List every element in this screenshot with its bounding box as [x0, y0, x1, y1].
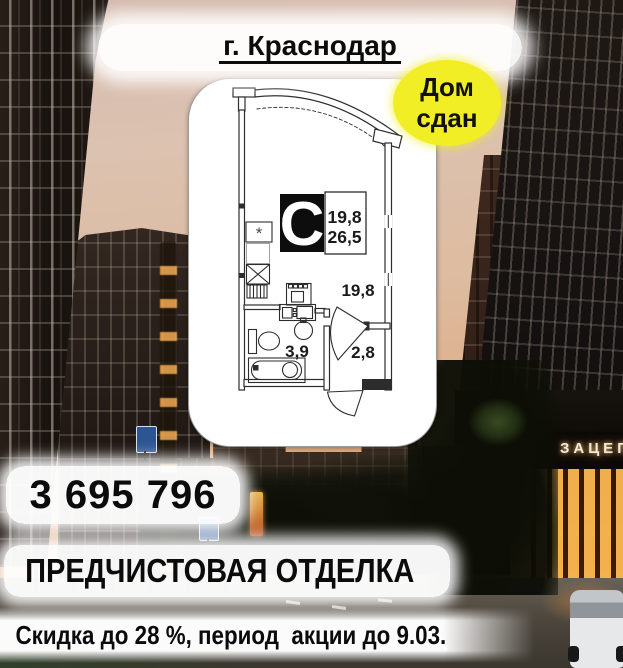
badge-line2: сдан — [416, 103, 477, 134]
bath-faucet — [253, 365, 259, 371]
finishing-banner: ПРЕДЧИСТОВАЯ ОТДЕЛКА — [4, 545, 450, 597]
hallway-area-label: 2,8 — [352, 343, 376, 362]
car-wheel — [568, 646, 579, 662]
price-value: 3 695 796 — [30, 473, 217, 518]
promo-label: Скидка до 28 %, период акции до 9.03. — [0, 620, 446, 651]
car-wheel — [616, 646, 623, 662]
bathroom-area-label: 3,9 — [286, 342, 310, 361]
floor-plan-card: C 19,8 26,5 19,8 3,9 2,8 * — [188, 78, 437, 447]
completion-badge: Дом сдан — [393, 60, 501, 146]
white-car — [570, 590, 623, 668]
living-area-value: 19,8 — [328, 207, 362, 227]
road-sign — [136, 426, 157, 453]
price-banner: 3 695 796 — [6, 466, 240, 524]
storefront-sign: ЗАЦЕП — [560, 440, 623, 457]
badge-line1: Дом — [420, 72, 474, 103]
room-area-label: 19,8 — [342, 281, 375, 300]
total-area-value: 26,5 — [328, 227, 362, 247]
promo-banner: Скидка до 28 %, период акции до 9.03. — [0, 607, 540, 663]
appliance-mark: * — [256, 224, 263, 243]
finishing-label: ПРЕДЧИСТОВАЯ ОТДЕЛКА — [4, 552, 414, 590]
plan-type-letter: C — [280, 190, 325, 259]
floor-plan-drawing: C 19,8 26,5 19,8 3,9 2,8 * — [187, 77, 436, 446]
tree-green-small — [468, 398, 528, 446]
listing-ad-image: ЗАЦЕП г. Краснодар — [0, 0, 623, 668]
lit-banner-strip — [250, 492, 263, 536]
city-title: г. Краснодар — [219, 31, 401, 64]
